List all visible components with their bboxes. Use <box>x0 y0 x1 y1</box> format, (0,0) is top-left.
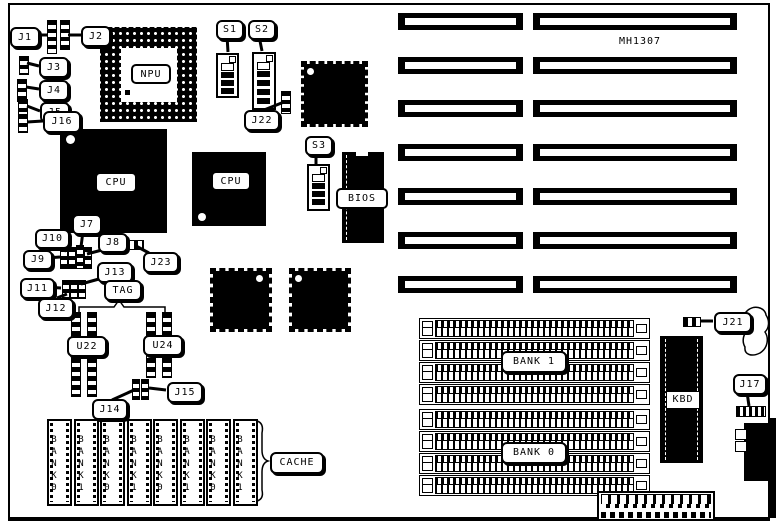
callout-s1: S1 <box>216 20 244 40</box>
s3-position-on <box>312 199 325 205</box>
s2-position-on <box>257 71 270 77</box>
callout-j7: J7 <box>72 214 102 235</box>
callout-j4: J4 <box>39 80 69 101</box>
jumper-cluster1-d <box>84 247 92 269</box>
callout-tag: TAG <box>104 280 142 301</box>
kbd-label: KBD <box>666 391 700 409</box>
s1-notch <box>229 56 236 63</box>
s2-position-on <box>257 80 270 86</box>
jumper-j1 <box>47 20 57 54</box>
isa-slot <box>398 144 523 161</box>
isa-slot <box>533 232 737 249</box>
npu-pin1-marker <box>125 90 130 95</box>
jumper-cluster2-b <box>70 280 78 299</box>
dip-switch-s3 <box>307 164 330 211</box>
power-pins-row <box>601 504 711 508</box>
callout-j21: J21 <box>714 312 752 333</box>
cache-chip-label: BANK0 <box>155 425 176 504</box>
callout-j12: J12 <box>38 298 74 319</box>
cache-chip: BANK0 <box>100 419 125 506</box>
jumper-j16 <box>18 114 28 133</box>
cache-chip: BANK1 <box>180 419 205 506</box>
callout-j3: J3 <box>39 57 69 78</box>
s3-position-open <box>312 174 325 182</box>
npu-label: NPU <box>131 64 171 84</box>
power-pins-row <box>601 512 711 518</box>
callout-j8: J8 <box>98 233 128 253</box>
jumper-j3 <box>19 56 29 75</box>
qfp-right-pin1-dot <box>295 275 302 282</box>
cache-chip-label: BANK0 <box>208 425 229 504</box>
isa-slot <box>398 57 523 74</box>
s1-position-on <box>221 88 234 94</box>
s2-position-on <box>257 89 270 95</box>
jumper-cluster2-c <box>78 280 86 299</box>
jumper-j15 <box>141 379 149 400</box>
callout-j1: J1 <box>10 27 40 48</box>
isa-slot <box>533 100 737 117</box>
jumper-j21 <box>683 317 701 327</box>
isa-slot <box>398 100 523 117</box>
jumper-j2 <box>60 20 70 50</box>
jumper-j14 <box>132 379 140 400</box>
isa-slot <box>533 13 737 30</box>
s1-position-on <box>221 72 234 78</box>
callout-j2: J2 <box>81 26 111 47</box>
s2-position-on <box>257 98 270 104</box>
isa-slot <box>533 276 737 293</box>
qfp-top-pin1-dot <box>307 68 314 75</box>
simm-socket <box>419 384 650 405</box>
jumper-cluster1-c <box>76 245 84 269</box>
callout-j10: J10 <box>35 229 70 249</box>
cache-chip-label: BANK0 <box>49 425 70 504</box>
bank0-label: BANK 0 <box>501 442 567 464</box>
s1-position-open <box>221 63 234 71</box>
isa-slot <box>398 276 523 293</box>
cache-chip-label: BANK1 <box>182 425 203 504</box>
cpu-main-label: CPU <box>95 172 137 193</box>
callout-j11: J11 <box>20 278 55 299</box>
callout-cache: CACHE <box>270 452 324 474</box>
u22-label: U22 <box>67 336 107 357</box>
cache-chip-label: BANK1 <box>235 425 256 504</box>
callout-j14: J14 <box>92 399 128 420</box>
callout-j9: J9 <box>23 250 53 270</box>
s2-notch <box>266 55 273 62</box>
s2-position-open <box>257 62 270 70</box>
callout-j23: J23 <box>143 252 179 273</box>
s3-position-on <box>312 191 325 197</box>
s1-position-on <box>221 80 234 86</box>
qfp-left-pin1-dot <box>256 275 263 282</box>
cache-chip-label: BANK0 <box>102 425 123 504</box>
cache-chip: BANK1 <box>127 419 152 506</box>
din-plug <box>735 429 747 440</box>
cpu-secondary-pin1-dot <box>198 213 206 221</box>
u24-label: U24 <box>143 335 183 356</box>
bios-notch <box>356 152 368 156</box>
board-model-text: MH1307 <box>590 36 690 47</box>
callout-j22: J22 <box>244 110 280 131</box>
cpu-main-pin1-dot <box>66 135 75 144</box>
power-connector <box>597 491 715 521</box>
cpu-secondary-label: CPU <box>211 171 251 191</box>
bank1-label: BANK 1 <box>501 351 567 373</box>
isa-slot <box>533 57 737 74</box>
cache-chip-label: BANK1 <box>76 425 97 504</box>
s3-notch <box>320 167 327 174</box>
callout-j17: J17 <box>733 374 767 395</box>
callout-s2: S2 <box>248 20 276 40</box>
isa-slot <box>398 13 523 30</box>
cache-chip: BANK0 <box>47 419 72 506</box>
callout-s3: S3 <box>305 136 333 156</box>
dip-switch-s1 <box>216 53 239 98</box>
board-edge-bracket <box>768 418 776 518</box>
isa-slot <box>398 232 523 249</box>
bios-label: BIOS <box>336 188 388 209</box>
simm-socket <box>419 409 650 430</box>
jumper-cluster1-a <box>60 247 68 269</box>
motherboard-diagram: NPU CPU CPU BIOS <box>0 0 780 527</box>
cache-chip-label: BANK1 <box>129 425 150 504</box>
jumper-cluster2-a <box>62 280 70 299</box>
callout-j15: J15 <box>167 382 203 403</box>
callout-j16: J16 <box>43 111 81 133</box>
jumper-j17 <box>736 406 766 417</box>
cache-chip: BANK0 <box>153 419 178 506</box>
isa-slot <box>533 144 737 161</box>
isa-slot <box>398 188 523 205</box>
simm-socket <box>419 318 650 339</box>
din-plug <box>735 441 747 452</box>
cache-chip: BANK0 <box>206 419 231 506</box>
cache-chip: BANK1 <box>233 419 258 506</box>
isa-slot <box>533 188 737 205</box>
cache-chip: BANK1 <box>74 419 99 506</box>
jumper-cluster1-b <box>68 247 76 269</box>
keyboard-din-connector <box>744 423 771 481</box>
dip-switch-s2 <box>252 52 276 110</box>
jumper-j22 <box>281 91 291 114</box>
s3-position-on <box>312 183 325 189</box>
